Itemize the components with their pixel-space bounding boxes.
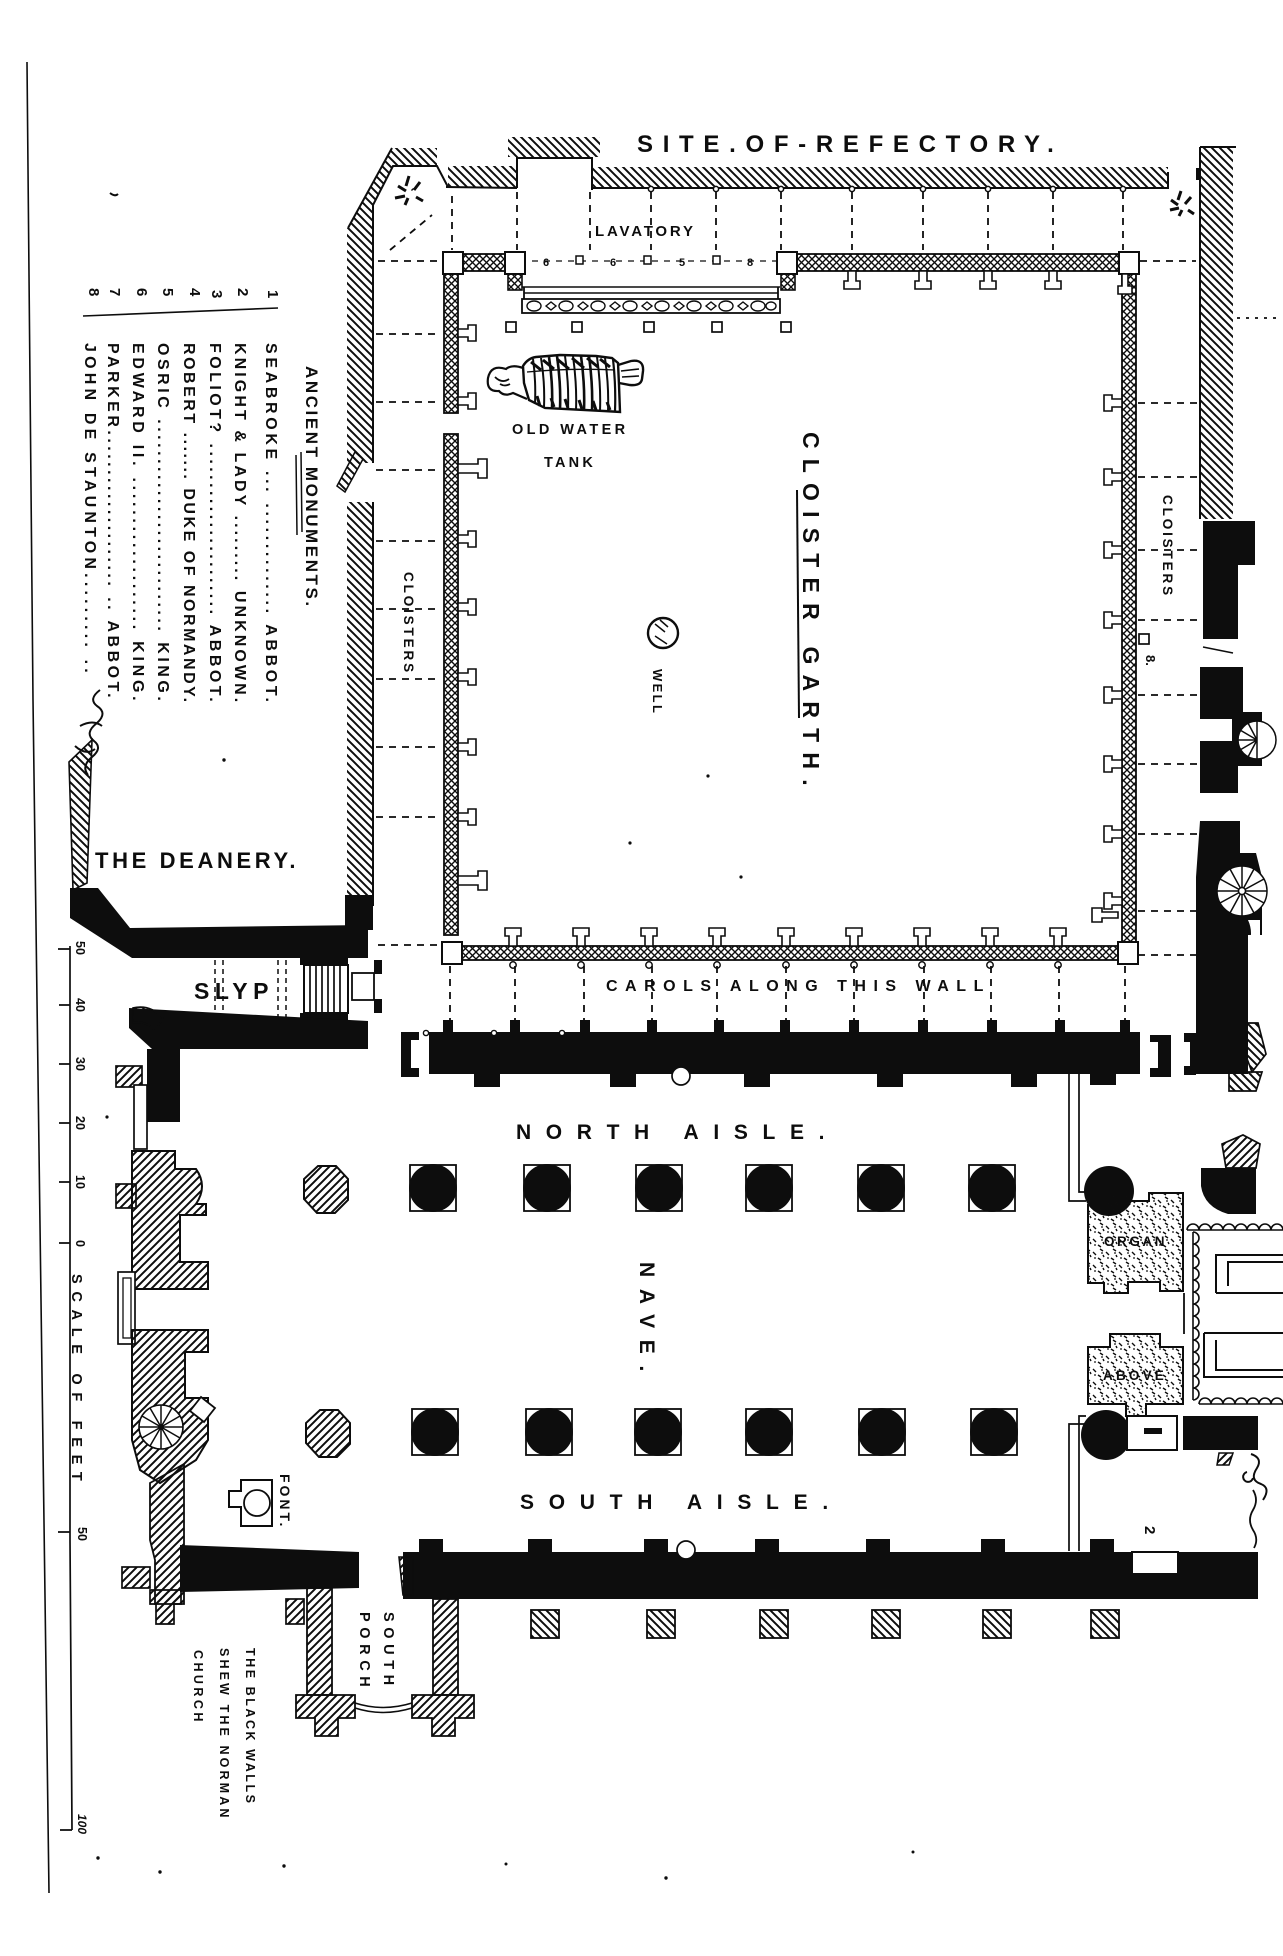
- svg-text:FOLIOT? ......................: FOLIOT? ...................... ABBOT.: [206, 343, 223, 705]
- svg-text:1: 1: [264, 290, 281, 299]
- svg-text:ORGAN: ORGAN: [1104, 1234, 1167, 1249]
- svg-text:6: 6: [610, 257, 616, 269]
- svg-text:10: 10: [73, 1175, 87, 1189]
- svg-text:8: 8: [747, 257, 753, 269]
- svg-text:2: 2: [1141, 1526, 1158, 1534]
- svg-text:5: 5: [159, 288, 176, 297]
- svg-text:SCALE OF FEET: SCALE OF FEET: [68, 1274, 84, 1489]
- svg-text:3: 3: [208, 290, 225, 299]
- svg-text:0: 0: [73, 1240, 87, 1247]
- svg-text:5: 5: [679, 257, 685, 269]
- svg-text:THE DEANERY.: THE DEANERY.: [95, 848, 299, 873]
- svg-text:OSRIC ........................: OSRIC ........................... KING.: [154, 343, 171, 704]
- svg-text:SLYP: SLYP: [194, 978, 274, 1004]
- svg-text:PORCH: PORCH: [356, 1612, 372, 1692]
- svg-text:6: 6: [543, 257, 549, 269]
- svg-text:LAVATORY: LAVATORY: [595, 223, 696, 240]
- svg-text:KNIGHT & LADY ......... UNKNOW: KNIGHT & LADY ......... UNKNOWN.: [231, 343, 248, 705]
- svg-text:NAVE.: NAVE.: [635, 1262, 658, 1383]
- svg-text:SITE.OF-REFECTORY.: SITE.OF-REFECTORY.: [637, 131, 1063, 158]
- svg-text:CAROLS ALONG THIS WALL: CAROLS ALONG THIS WALL: [606, 978, 991, 995]
- svg-text:CLOISTER GARTH.: CLOISTER GARTH.: [798, 432, 824, 796]
- svg-text:40: 40: [73, 998, 87, 1012]
- svg-text:8: 8: [85, 288, 102, 297]
- svg-text:CLOISTERS: CLOISTERS: [401, 572, 416, 675]
- svg-text:CHURCH: CHURCH: [191, 1650, 205, 1725]
- svg-text:ABOVE: ABOVE: [1103, 1368, 1167, 1383]
- svg-text:7: 7: [106, 288, 123, 297]
- svg-text:4: 4: [186, 288, 203, 297]
- svg-text:ANCIENT MONUMENTS.: ANCIENT MONUMENTS.: [302, 366, 321, 609]
- svg-text:EDWARD II. ...................: EDWARD II. ................... KING.: [129, 343, 146, 704]
- svg-text:100: 100: [75, 1814, 89, 1834]
- svg-text:ROBERT ....... DUKE OF NORMAND: ROBERT ....... DUKE OF NORMANDY.: [180, 343, 197, 705]
- svg-text:50: 50: [73, 941, 87, 955]
- svg-text:SEABROKE ... .............. AB: SEABROKE ... .............. ABBOT.: [262, 343, 279, 706]
- svg-text:8.: 8.: [1143, 655, 1158, 666]
- svg-text:SOUTH: SOUTH: [380, 1612, 396, 1691]
- svg-text:THE BLACK WALLS: THE BLACK WALLS: [243, 1648, 257, 1806]
- svg-text:20: 20: [73, 1116, 87, 1130]
- svg-text:30: 30: [73, 1057, 87, 1071]
- svg-text:2: 2: [234, 288, 251, 297]
- svg-text:TANK: TANK: [544, 455, 596, 471]
- svg-text:SHEW THE NORMAN: SHEW THE NORMAN: [217, 1648, 231, 1821]
- svg-text:JOHN DE STAUNTON......... ..: JOHN DE STAUNTON......... ..: [81, 343, 98, 677]
- svg-text:CLOISTERS: CLOISTERS: [1160, 495, 1175, 598]
- svg-text:6: 6: [133, 288, 150, 297]
- svg-text:FONT.: FONT.: [277, 1474, 293, 1529]
- svg-text:OLD WATER: OLD WATER: [512, 422, 629, 438]
- svg-text:PARKER.................... ..: PARKER.................... .. ABBOT.: [104, 343, 121, 701]
- svg-text:WELL: WELL: [650, 669, 665, 715]
- svg-text:SOUTH AISLE.: SOUTH AISLE.: [520, 1491, 843, 1514]
- svg-text:NORTH AISLE.: NORTH AISLE.: [516, 1121, 839, 1144]
- svg-text:50: 50: [75, 1527, 89, 1541]
